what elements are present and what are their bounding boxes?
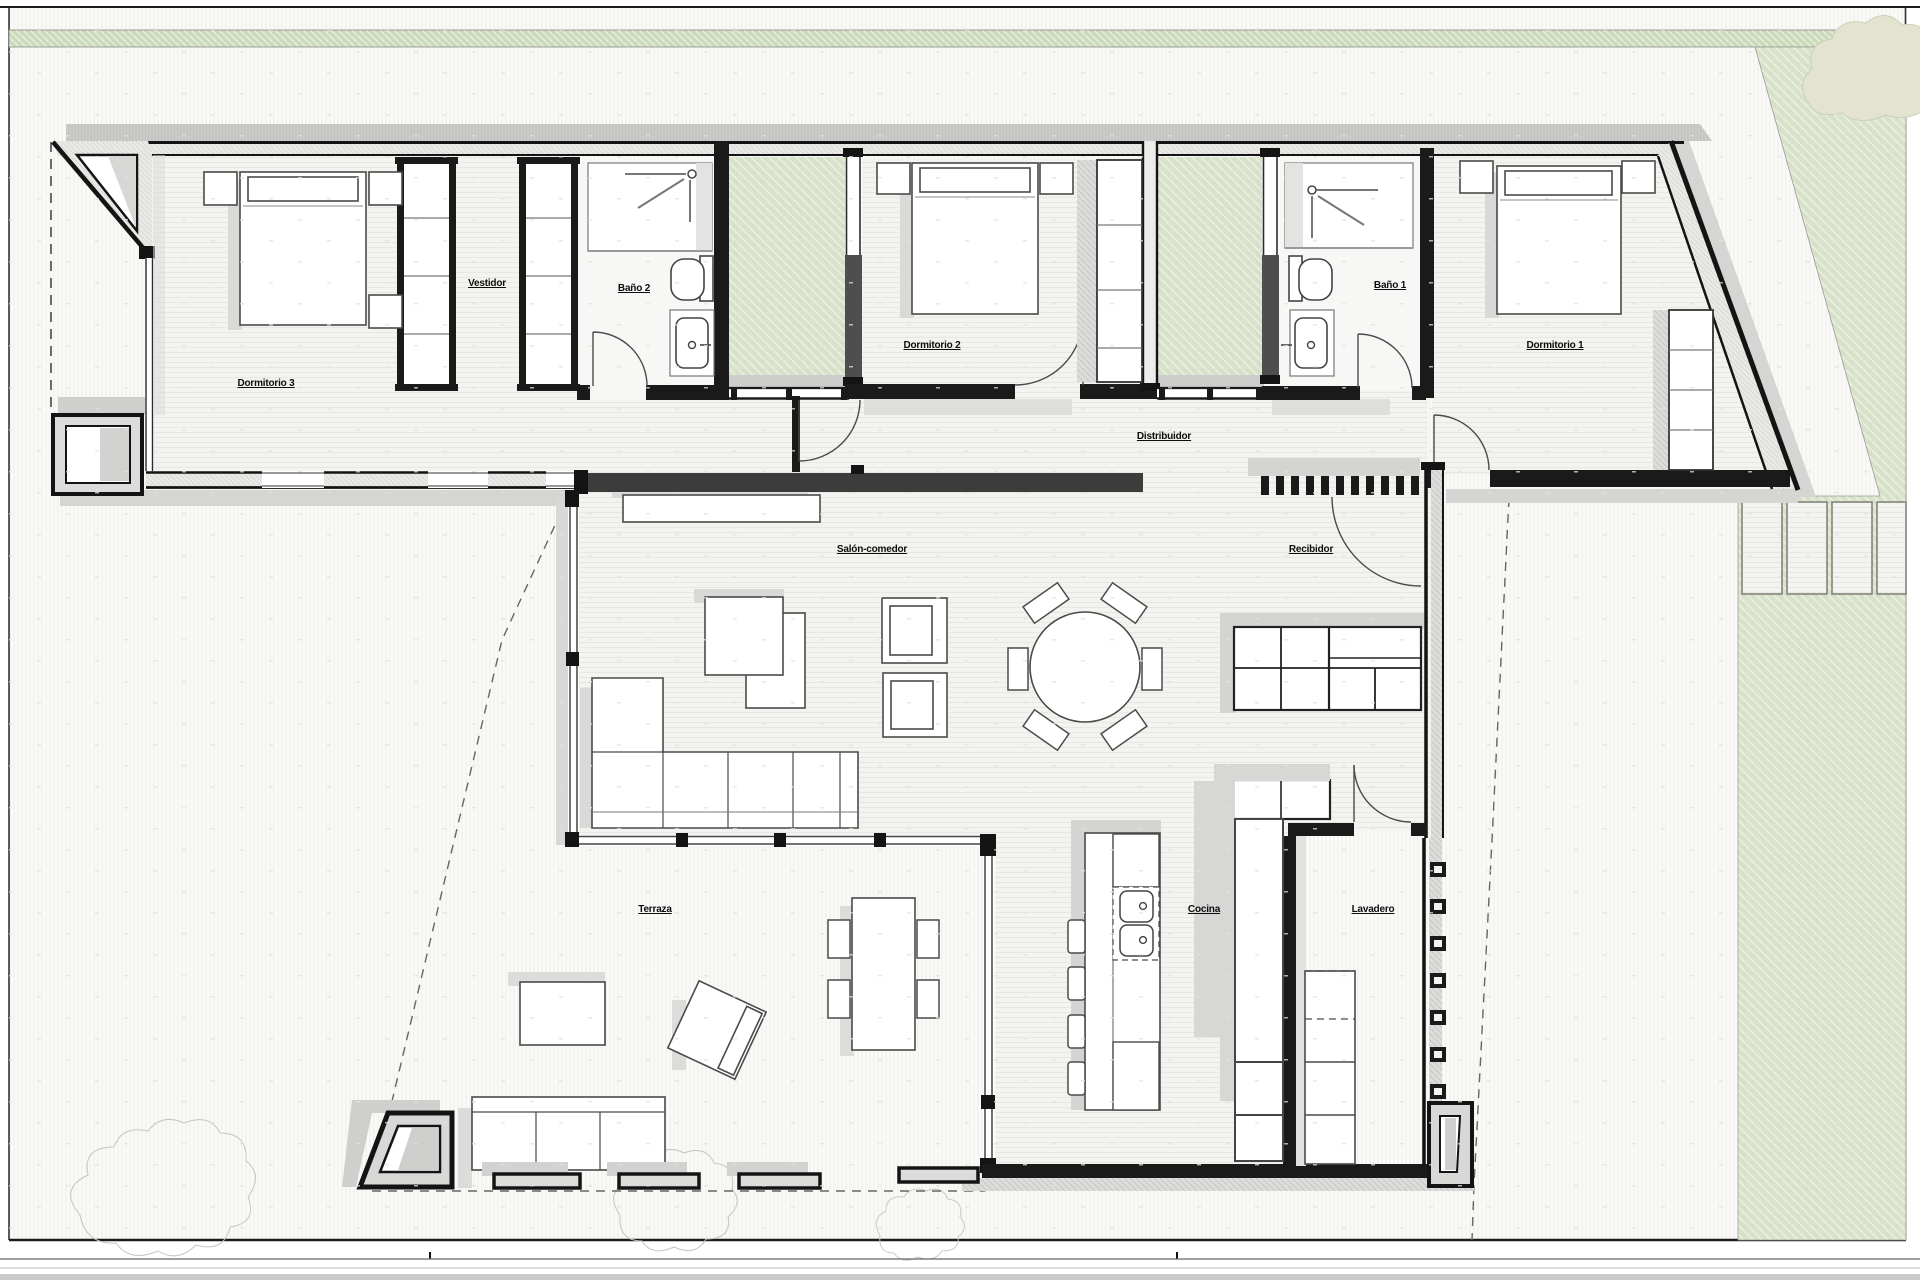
- svg-text:Dormitorio 2: Dormitorio 2: [903, 340, 961, 351]
- svg-text:Baño 1: Baño 1: [1374, 280, 1407, 291]
- svg-text:Distribuidor: Distribuidor: [1137, 431, 1192, 442]
- svg-text:Terraza: Terraza: [638, 904, 672, 915]
- svg-text:Recibidor: Recibidor: [1289, 544, 1334, 555]
- svg-text:Lavadero: Lavadero: [1352, 904, 1395, 915]
- svg-text:Baño 2: Baño 2: [618, 283, 651, 294]
- svg-text:Dormitorio 3: Dormitorio 3: [237, 378, 295, 389]
- svg-text:Vestidor: Vestidor: [468, 278, 506, 289]
- svg-text:Salón-comedor: Salón-comedor: [837, 544, 907, 555]
- svg-text:Dormitorio 1: Dormitorio 1: [1526, 340, 1584, 351]
- svg-text:Cocina: Cocina: [1188, 904, 1221, 915]
